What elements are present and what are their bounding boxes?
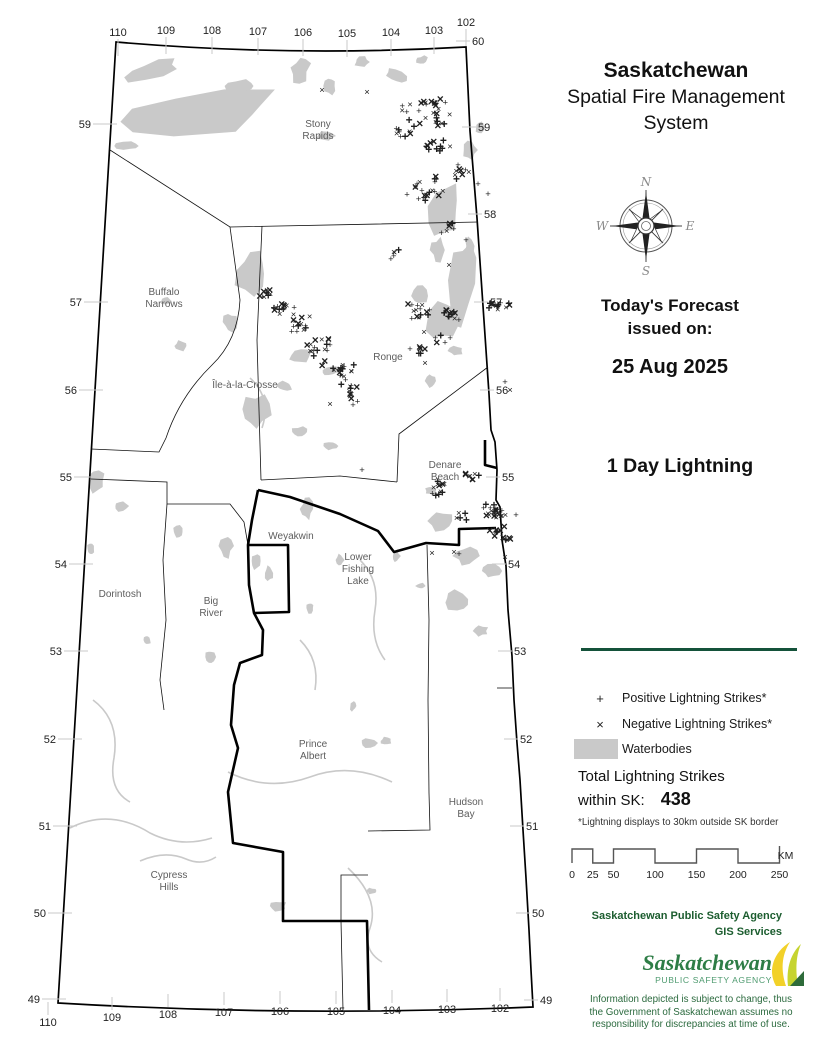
positive-strike-marker: + (447, 333, 453, 344)
graticule-label: 106 (271, 1006, 289, 1018)
negative-strike-marker: × (437, 92, 444, 106)
fire-zone-boundary (341, 875, 368, 1010)
graticule-label: 110 (109, 27, 127, 39)
waterbody (89, 470, 104, 493)
cross-symbol-icon: × (578, 717, 622, 732)
graticule-label: 54 (508, 559, 520, 571)
total-strikes-line2: within SK:438 (578, 789, 691, 810)
graticule-label: 52 (44, 734, 56, 746)
negative-strike-marker: × (416, 340, 423, 354)
compass-rose: N E S W (596, 176, 696, 276)
positive-strike-marker: + (423, 140, 430, 154)
negative-strike-marker: × (430, 186, 436, 197)
place-label: Dorintosh (99, 589, 142, 600)
waterbody (115, 501, 129, 512)
forecast-block: Today's Forecast issued on: 25 Aug 2025 (540, 294, 800, 379)
negative-strike-marker: × (407, 127, 413, 138)
disclaimer-line2: the Government of Saskatchewan assumes n… (576, 1007, 806, 1020)
graticule-label: 110 (39, 1017, 57, 1029)
waterbody (323, 79, 335, 96)
agency-gis-services: GIS Services (560, 926, 782, 938)
negative-strike-marker: × (429, 548, 435, 559)
positive-strike-marker: + (400, 101, 406, 112)
positive-strike-marker: + (338, 378, 345, 392)
negative-strike-marker: × (447, 142, 453, 153)
title-block: Saskatchewan Spatial Fire Management Sys… (540, 58, 812, 136)
positive-strike-marker: + (436, 144, 443, 158)
river (93, 700, 130, 802)
place-label: Île-à-la-Crosse (211, 378, 278, 391)
graticule-label: 60 (472, 36, 484, 48)
waterbody (306, 604, 313, 614)
negative-strike-marker: × (440, 186, 446, 197)
place-label: DenareBeach (429, 460, 462, 483)
negative-strike-marker: × (493, 523, 500, 537)
logo-subtitle: PUBLIC SAFETY AGENCY (655, 975, 772, 985)
negative-strike-marker: × (364, 87, 370, 98)
positive-strike-marker: + (475, 179, 481, 190)
negative-strike-marker: × (260, 285, 267, 299)
negative-strike-marker: × (407, 100, 413, 111)
negative-strike-marker: × (346, 386, 352, 397)
legend-label-negative: Negative Lightning Strikes* (622, 717, 772, 731)
place-labels-layer: StonyRapidsBuffaloNarrowsÎle-à-la-Crosse… (99, 119, 484, 893)
graticule-label: 49 (540, 995, 552, 1007)
negative-strike-marker: × (472, 469, 478, 480)
graticule-label: 55 (60, 472, 72, 484)
waterbody (416, 55, 428, 63)
scale-tick-label: 150 (688, 869, 706, 881)
waterbody-swatch-icon (574, 739, 618, 759)
positive-strike-marker: + (289, 327, 295, 338)
negative-strike-marker: × (462, 467, 469, 481)
graticule-label: 102 (491, 1003, 509, 1015)
scale-unit-label: KM (778, 850, 794, 862)
disclaimer-line3: responsibility for discrepancies at time… (576, 1019, 806, 1032)
graticule-label: 51 (39, 821, 51, 833)
saskatchewan-map: 1101091081071061051041031021101091081071… (0, 0, 816, 1056)
scale-tick-label: 25 (587, 869, 599, 881)
lightning-footnote: *Lightning displays to 30km outside SK b… (578, 817, 778, 828)
waterbody (292, 426, 307, 436)
waterbody (473, 625, 488, 636)
agency-name: Saskatchewan Public Safety Agency (560, 910, 782, 922)
place-label: CypressHills (151, 870, 188, 893)
river (300, 640, 316, 690)
graticule-label: 53 (50, 646, 62, 658)
legend-item-negative: × Negative Lightning Strikes* (578, 712, 808, 736)
fire-zone-boundary (160, 504, 167, 710)
graticule-label: 53 (514, 646, 526, 658)
positive-strike-marker: + (359, 465, 365, 476)
waterbody (415, 583, 426, 589)
map-sheet: 1101091081071061051041031021101091081071… (0, 0, 816, 1056)
waterbody (144, 636, 151, 644)
negative-strike-marker: × (319, 85, 325, 96)
negative-strike-marker: × (502, 552, 508, 563)
positive-strike-marker: + (434, 174, 440, 185)
waterbody (87, 544, 94, 554)
compass-s: S (642, 264, 650, 276)
fire-zone-boundary (91, 227, 240, 452)
waterbody (425, 374, 436, 388)
graticule-label: 49 (28, 994, 40, 1006)
negative-strike-marker: × (446, 219, 453, 233)
forest-zone-boundary (248, 490, 289, 613)
negative-strike-marker: × (321, 354, 328, 368)
total-strikes-label: within SK: (578, 792, 645, 809)
graticule-label: 59 (79, 119, 91, 131)
province-outline (58, 42, 533, 1011)
waterbody (124, 58, 177, 82)
negative-strike-marker: × (348, 366, 354, 377)
positive-strike-marker: + (433, 333, 439, 344)
total-strikes-line1: Total Lightning Strikes (578, 768, 725, 785)
negative-strike-marker: × (281, 298, 288, 312)
scale-bar-outline (572, 846, 780, 863)
waterbody (219, 537, 235, 559)
positive-strike-marker: + (404, 189, 410, 200)
graticule-label: 50 (532, 908, 544, 920)
negative-strike-marker: × (301, 325, 307, 336)
waterbody (173, 525, 182, 538)
place-label: Ronge (373, 352, 403, 363)
positive-strike-marker: + (350, 400, 356, 411)
waterbody (386, 68, 407, 83)
graticule-label: 50 (34, 908, 46, 920)
waterbody (362, 738, 378, 748)
fire-zone-boundaries-thick (228, 440, 497, 1010)
place-label: Weyakwin (268, 531, 313, 542)
scale-tick-label: 50 (608, 869, 620, 881)
positive-strike-marker: + (456, 315, 462, 326)
waterbody (323, 442, 338, 450)
waterbody (174, 340, 186, 351)
forecast-date: 25 Aug 2025 (540, 356, 800, 379)
compass-e: E (685, 219, 695, 233)
waterbody (427, 512, 452, 531)
negative-strike-marker: × (327, 399, 333, 410)
positive-strike-marker: + (424, 308, 431, 322)
legend-divider (581, 648, 797, 651)
waterbody (291, 58, 312, 84)
waterbody (265, 565, 273, 581)
negative-strike-marker: × (506, 298, 513, 312)
graticule-label: 107 (215, 1007, 233, 1019)
graticule-label: 108 (203, 25, 221, 37)
graticule-label: 103 (438, 1004, 456, 1016)
plus-symbol-icon: + (578, 691, 622, 706)
negative-strike-marker: × (423, 113, 429, 124)
negative-strike-marker: × (422, 358, 428, 369)
disclaimer: Information depicted is subject to chang… (576, 994, 806, 1032)
river (70, 819, 212, 842)
waterbody (205, 652, 216, 663)
river (228, 771, 392, 784)
graticule-label: 104 (382, 27, 400, 39)
positive-strike-marker: + (463, 235, 469, 246)
place-label: PrinceAlbert (299, 739, 328, 762)
positive-strike-marker: + (327, 340, 333, 351)
place-label: HudsonBay (449, 797, 483, 820)
waterbody (355, 56, 370, 67)
positive-strike-marker: + (312, 342, 318, 353)
graticule-label: 107 (249, 26, 267, 38)
positive-strike-marker: + (441, 117, 448, 131)
negative-strike-marker: × (452, 170, 458, 181)
disclaimer-line1: Information depicted is subject to chang… (576, 994, 806, 1007)
negative-strike-marker: × (483, 509, 490, 523)
river (348, 868, 382, 962)
graticule-label: 105 (338, 28, 356, 40)
graticule-label: 109 (103, 1012, 121, 1024)
graticule-label: 52 (520, 734, 532, 746)
product-title: 1 Day Lightning (540, 455, 816, 478)
graticule-label: 104 (383, 1005, 401, 1017)
compass-w: W (596, 219, 610, 233)
positive-strike-marker: + (407, 344, 413, 355)
lightning-strikes-layer: ×+×+++××++×××+×+××××××+××++××+××+++++××+… (256, 85, 519, 563)
waterbody (350, 701, 356, 712)
negative-strike-marker: × (447, 309, 453, 320)
waterbody (448, 346, 463, 356)
forest-zone-boundary (228, 613, 369, 1010)
graticule-label: 56 (65, 385, 77, 397)
positive-strike-marker: + (395, 243, 402, 257)
legend-item-positive: + Positive Lightning Strikes* (578, 686, 808, 710)
forecast-line1: Today's Forecast (540, 294, 800, 317)
waterbody (276, 381, 292, 391)
negative-strike-marker: × (496, 299, 502, 310)
positive-strike-marker: + (490, 498, 497, 512)
positive-strike-marker: + (489, 300, 495, 311)
scale-tick-label: 100 (646, 869, 664, 881)
graticule-label: 58 (484, 209, 496, 221)
negative-strike-marker: × (507, 385, 513, 396)
river (140, 855, 216, 862)
waterbody (482, 564, 502, 577)
place-label: BigRiver (199, 596, 223, 619)
graticule-label: 102 (457, 17, 475, 29)
logo-wordmark: Saskatchewan (642, 950, 772, 975)
graticule-label: 54 (55, 559, 67, 571)
waterbody (445, 589, 468, 610)
positive-strike-marker: + (462, 507, 469, 521)
graticule-label: 108 (159, 1009, 177, 1021)
legend-label-waterbodies: Waterbodies (622, 742, 692, 756)
positive-strike-marker: + (441, 306, 448, 320)
negative-strike-marker: × (421, 327, 427, 338)
legend-label-positive: Positive Lightning Strikes* (622, 691, 767, 705)
graticule-label: 59 (478, 122, 490, 134)
place-label: StonyRapids (302, 119, 333, 142)
scale-bar: 02550100150200250KM (566, 842, 810, 884)
waterbody (114, 141, 138, 150)
negative-strike-marker: × (413, 305, 419, 316)
positive-strike-marker: + (395, 123, 402, 137)
place-label: LowerFishingLake (342, 552, 374, 587)
waterbody (242, 394, 271, 429)
waterbody (381, 737, 392, 744)
map-subtitle: Spatial Fire Management System (540, 84, 812, 136)
river (360, 560, 385, 660)
waterbody (252, 554, 261, 570)
graticule-label: 55 (502, 472, 514, 484)
negative-strike-marker: × (447, 110, 453, 121)
fire-zone-boundary (261, 476, 397, 482)
positive-strike-marker: + (513, 510, 519, 521)
scale-tick-label: 0 (569, 869, 575, 881)
rivers-layer (70, 378, 392, 962)
fire-zone-boundary (91, 479, 248, 545)
agency-logo: Saskatchewan PUBLIC SAFETY AGENCY (640, 940, 806, 994)
forecast-line2: issued on: (540, 317, 800, 340)
waterbody (223, 314, 238, 333)
total-strikes-value: 438 (661, 789, 691, 809)
negative-strike-marker: × (420, 95, 427, 109)
scale-tick-label: 250 (771, 869, 789, 881)
waterbody (430, 237, 445, 263)
map-title: Saskatchewan (540, 58, 812, 84)
graticule-label: 51 (526, 821, 538, 833)
place-label: BuffaloNarrows (145, 287, 182, 310)
waterbody (120, 89, 275, 136)
logo-swoosh-yellow (772, 942, 790, 986)
graticule-label: 109 (157, 25, 175, 37)
graticule-label: 106 (294, 27, 312, 39)
graticule-label: 57 (70, 297, 82, 309)
positive-strike-marker: + (502, 532, 509, 546)
positive-strike-marker: + (485, 189, 491, 200)
scale-tick-label: 200 (729, 869, 747, 881)
negative-strike-marker: × (307, 312, 313, 323)
compass-n: N (640, 176, 652, 189)
negative-strike-marker: × (446, 260, 452, 271)
graticule-label: 105 (327, 1006, 345, 1018)
graticule-label: 103 (425, 25, 443, 37)
positive-strike-marker: + (419, 186, 425, 197)
positive-strike-marker: + (432, 108, 438, 119)
negative-strike-marker: × (466, 167, 472, 178)
positive-strike-marker: + (456, 549, 462, 560)
negative-strike-marker: × (290, 313, 297, 327)
